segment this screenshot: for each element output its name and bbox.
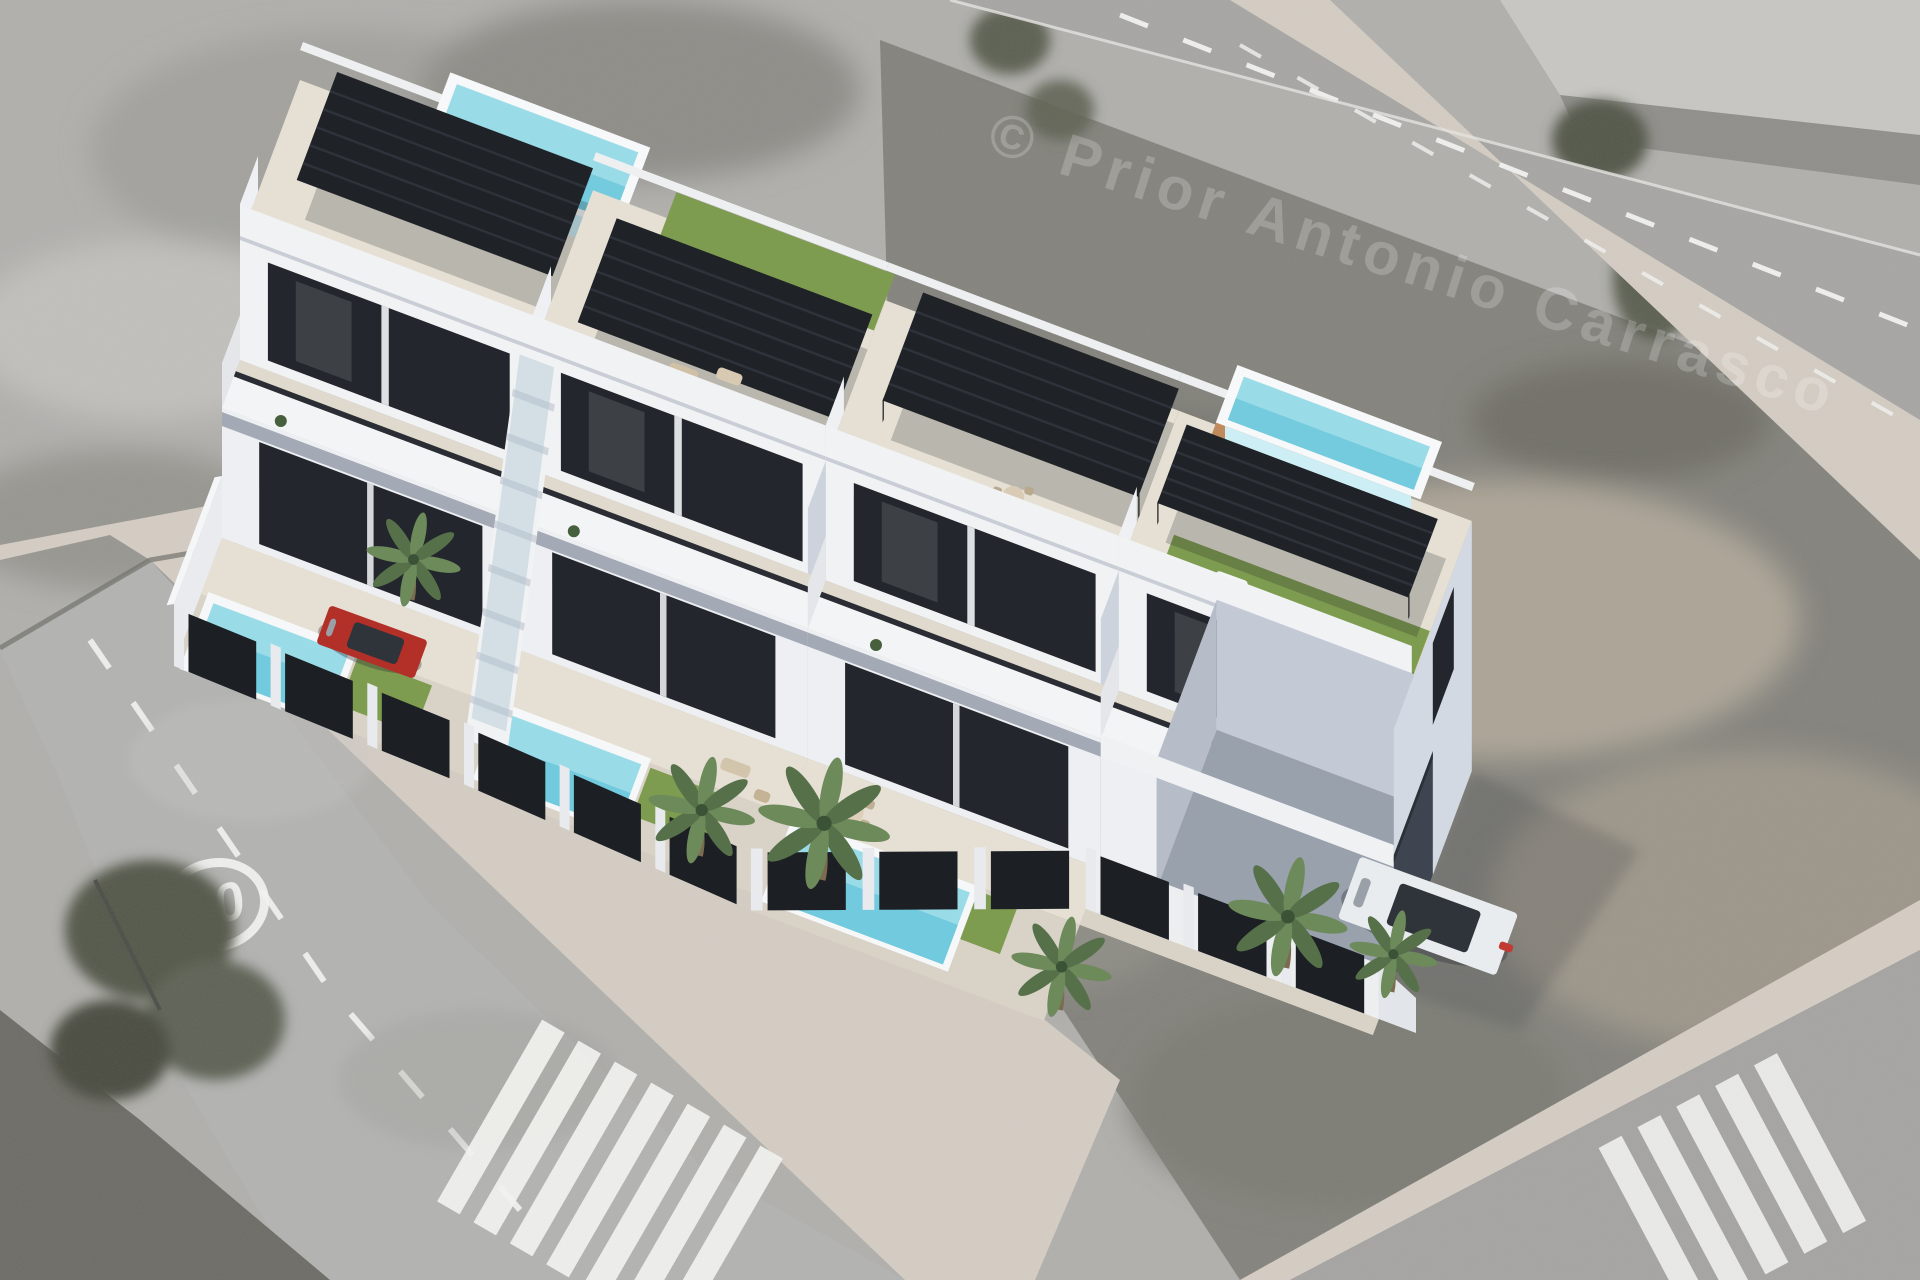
palm-crown bbox=[817, 816, 832, 831]
potted-plant bbox=[275, 415, 287, 427]
fence-post bbox=[271, 643, 281, 709]
potted-plant bbox=[568, 525, 580, 537]
ground-mullion bbox=[660, 593, 667, 697]
palm-crown bbox=[696, 804, 708, 816]
fence-post bbox=[464, 722, 474, 788]
potted-plant bbox=[870, 639, 882, 651]
pergola-post bbox=[1138, 494, 1139, 519]
aerial-render-scene: 20 bbox=[0, 0, 1920, 1280]
palm-crown bbox=[1281, 910, 1295, 924]
fence-post bbox=[174, 604, 184, 670]
glass-mullion bbox=[381, 305, 388, 406]
fence-post bbox=[1184, 884, 1194, 950]
pergola-post bbox=[1408, 594, 1409, 619]
palm-crown bbox=[408, 554, 419, 565]
fence-post bbox=[560, 764, 570, 831]
ground-mullion bbox=[953, 703, 960, 807]
fence-post bbox=[751, 848, 763, 910]
fence-post bbox=[974, 847, 986, 909]
pergola-post bbox=[883, 397, 884, 422]
garden-fence-panel bbox=[879, 851, 957, 909]
fence-post bbox=[863, 848, 875, 910]
ground-mullion bbox=[367, 483, 374, 587]
garden-fence-panel bbox=[991, 851, 1069, 909]
palm-crown bbox=[1388, 949, 1398, 959]
fence-post bbox=[367, 683, 377, 749]
pergola-post bbox=[1157, 500, 1158, 525]
glass-mullion bbox=[967, 526, 974, 627]
palm-crown bbox=[1056, 961, 1068, 973]
fence-post bbox=[1086, 847, 1096, 913]
glass-mullion bbox=[674, 416, 682, 517]
